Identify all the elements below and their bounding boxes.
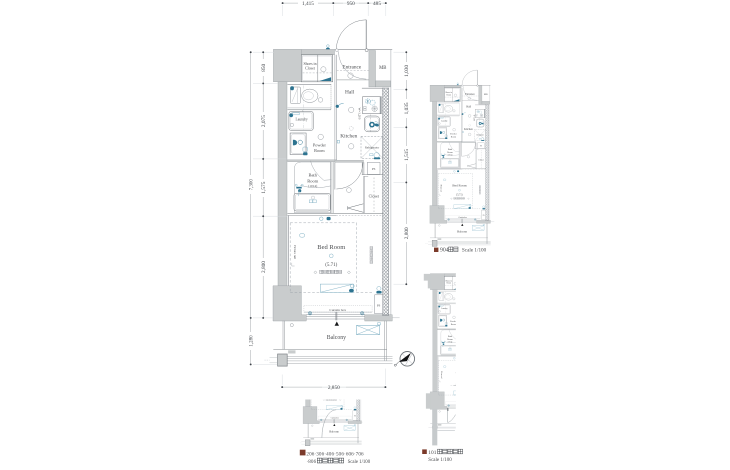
svg-text:485: 485 (373, 1, 381, 7)
svg-text:·806: ·806 (306, 459, 316, 465)
svg-text:101: 101 (428, 450, 436, 456)
svg-text:2,075: 2,075 (261, 115, 267, 127)
svg-text:Scale 1/100: Scale 1/100 (428, 458, 452, 463)
svg-text:1,030: 1,030 (404, 65, 410, 77)
svg-text:904: 904 (440, 248, 449, 254)
svg-text:850: 850 (261, 63, 267, 71)
svg-text:950: 950 (347, 1, 355, 7)
svg-text:1,515: 1,515 (404, 149, 410, 161)
svg-text:2,800: 2,800 (404, 227, 410, 239)
svg-text:7,300: 7,300 (249, 179, 254, 191)
svg-text:1,280: 1,280 (249, 335, 254, 347)
svg-text:1,415: 1,415 (302, 1, 314, 7)
svg-text:206·306·406·506·606·706: 206·306·406·506·606·706 (306, 451, 364, 457)
svg-text:1,575: 1,575 (261, 181, 267, 193)
svg-text:1,035: 1,035 (404, 102, 410, 114)
svg-text:Scale 1/100: Scale 1/100 (462, 248, 487, 254)
svg-text:2,850: 2,850 (328, 385, 340, 391)
svg-text:Scale 1/100: Scale 1/100 (348, 460, 371, 465)
svg-text:2,800: 2,800 (261, 261, 267, 273)
